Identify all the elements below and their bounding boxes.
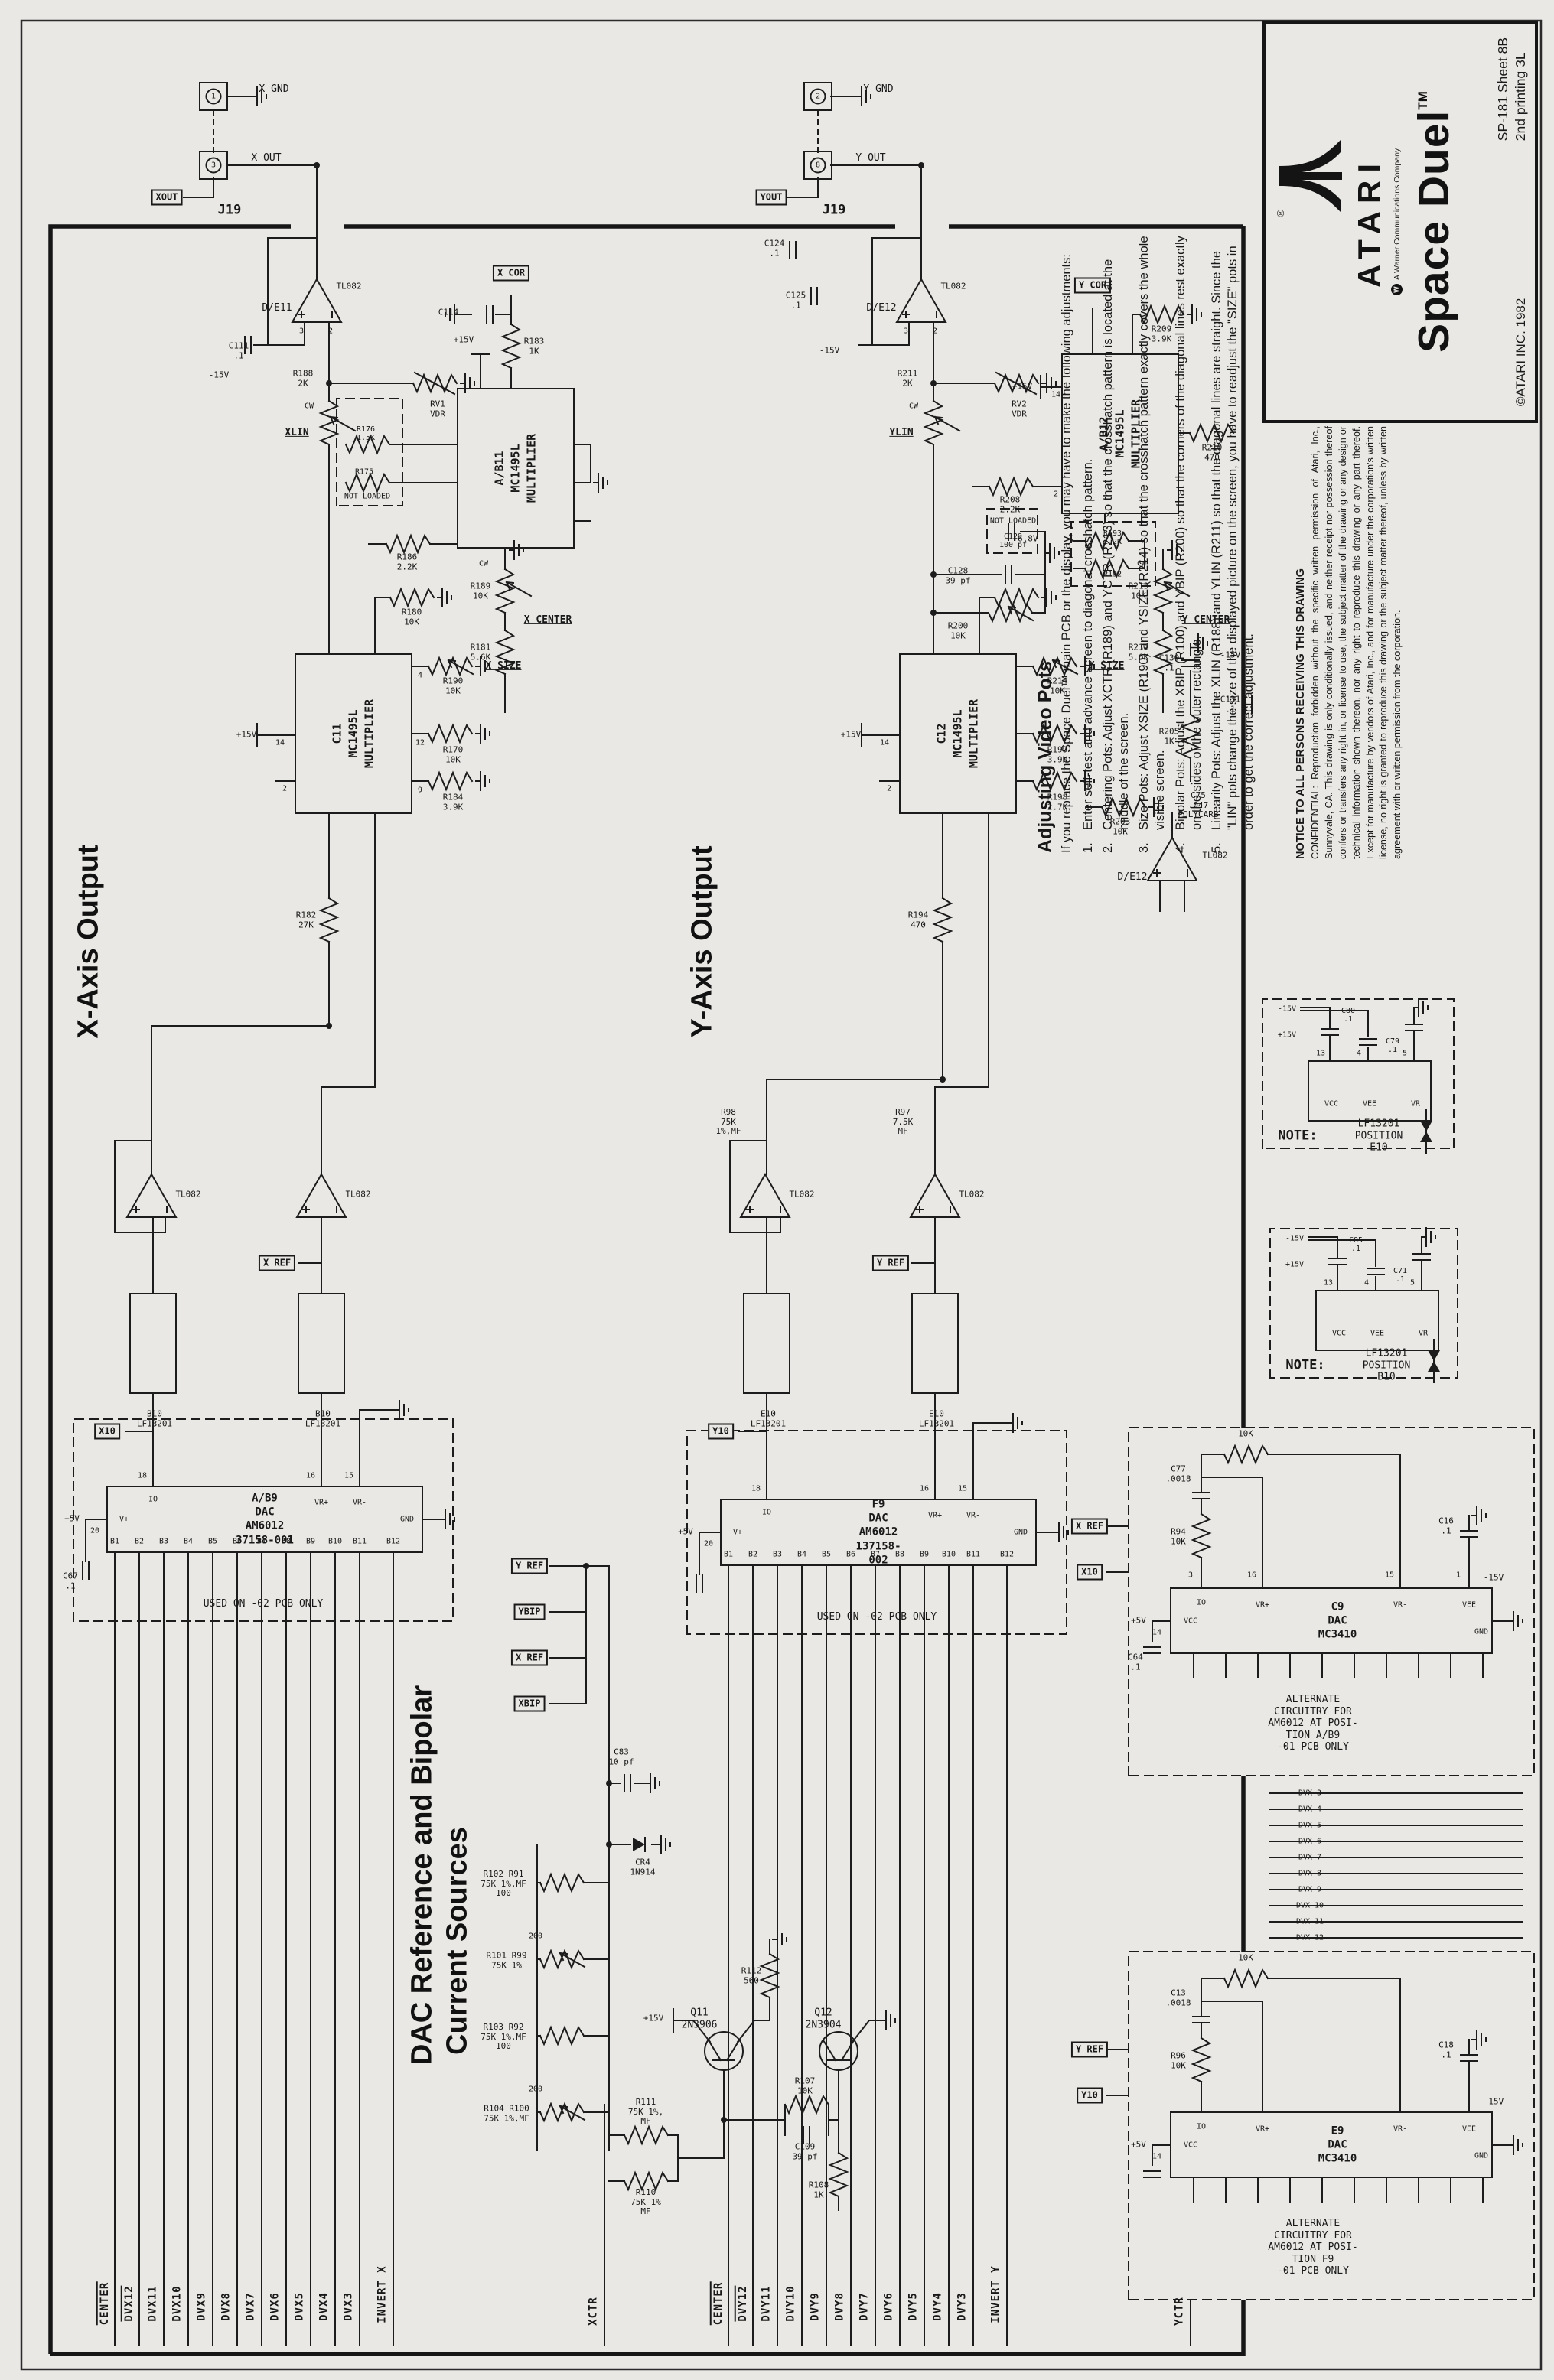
schematic-label: -15V: [1484, 1574, 1504, 1584]
schematic-label: DVX 4: [1298, 1805, 1321, 1814]
schematic-label: B10: [942, 1551, 956, 1559]
schematic-label: USED ON -02 PCB ONLY: [817, 1611, 937, 1623]
schematic-label: B12: [386, 1538, 400, 1546]
schematic-label: R111 75K 1%, MF: [628, 2098, 663, 2127]
instructions-intro: If you replace the Space Duel™ main PCB …: [1060, 232, 1074, 853]
schematic-label: E10 LF13201: [751, 1409, 786, 1428]
schematic-label: 16: [306, 1472, 315, 1480]
schematic-label: NOTE:: [1285, 1357, 1324, 1373]
schematic-label: C77 .0018: [1165, 1464, 1191, 1483]
schematic-label: IO: [1197, 1599, 1206, 1607]
schematic-label: B10: [328, 1538, 342, 1546]
instruction-text: Enter self-test and advance screen to di…: [1080, 459, 1096, 830]
schematic-label: VEE: [1370, 1330, 1384, 1338]
instruction-text: Size Pots: Adjust XSIZE (R190) and YSIZE…: [1136, 232, 1168, 830]
schematic-label: TL082: [336, 282, 361, 292]
schematic-label: -15V: [819, 347, 840, 357]
schematic-label: V+: [733, 1529, 742, 1537]
schematic-label: RV1 VDR: [430, 399, 445, 418]
schematic-label: R104 R100 75K 1%,MF: [484, 2104, 529, 2123]
schematic-label: DVX9: [195, 2292, 209, 2321]
schematic-label: VR+: [1256, 1601, 1269, 1610]
schematic-label: R103 R92 75K 1%,MF 100: [481, 2023, 526, 2052]
schematic-label: 10K: [1238, 1430, 1253, 1440]
schematic-label: 3: [904, 327, 908, 336]
schematic-label: X REF: [511, 1650, 548, 1666]
schematic-label: X10: [94, 1424, 120, 1440]
schematic-label: +15V: [1278, 1031, 1296, 1040]
schematic-label: VR+: [314, 1499, 328, 1507]
schematic-label: VEE: [1363, 1100, 1376, 1109]
product-title: Space DuelTM: [1409, 91, 1459, 353]
schematic-label: Current Sources: [439, 1827, 476, 2055]
schematic-label: 18: [751, 1485, 761, 1493]
schematic-label: XCTR: [587, 2297, 601, 2326]
schematic-label: 14: [275, 739, 285, 747]
schematic-label: C80 .1: [1341, 1007, 1355, 1024]
schematic-label: VR-: [353, 1499, 367, 1507]
schematic-label: C71 .1: [1393, 1267, 1407, 1284]
schematic-label: XOUT: [151, 190, 183, 206]
schematic-label: 3: [211, 161, 216, 170]
schematic-label: R94 10K: [1171, 1527, 1186, 1546]
schematic-label: VR+: [928, 1512, 942, 1520]
schematic-label: Y GND: [863, 83, 893, 96]
schematic-label: +15V: [841, 731, 862, 741]
schematic-label: XBIP: [514, 1696, 546, 1712]
schematic-label: IO: [762, 1509, 771, 1517]
schematic-label: R102 R91 75K 1%,MF 100: [481, 1870, 526, 1899]
schematic-label: ALTERNATE CIRCUITRY FOR AM6012 AT POSI- …: [1268, 1694, 1357, 1753]
schematic-label: TL082: [345, 1190, 370, 1200]
schematic-label: 20: [90, 1527, 99, 1535]
schematic-label: DAC Reference and Bipolar: [404, 1685, 441, 2065]
schematic-label: R96 10K: [1171, 2051, 1186, 2070]
schematic-label: C11 MC1495L MULTIPLIER: [330, 699, 378, 768]
schematic-label: C12 MC1495L MULTIPLIER: [934, 699, 982, 768]
schematic-label: ALTERNATE CIRCUITRY FOR AM6012 AT POSI- …: [1268, 2218, 1357, 2277]
warner-text: A Warner Communications Company: [1393, 148, 1402, 280]
schematic-label: C83 10 pf: [608, 1747, 634, 1766]
document-number: SP-181 Sheet 8B 2nd printing 3L: [1495, 37, 1529, 141]
schematic-label: J19: [218, 202, 242, 218]
schematic-label: DVX11: [146, 2285, 160, 2321]
schematic-label: E10 LF13201: [919, 1409, 954, 1428]
schematic-label: IO: [148, 1496, 158, 1504]
schematic-label: Y REF: [1071, 2042, 1108, 2058]
schematic-label: 12: [415, 739, 425, 747]
schematic-label: 20: [704, 1540, 713, 1548]
schematic-label: Y-Axis Output: [684, 845, 721, 1037]
instruction-item: 4. Bipolar Pots: Adjust the XBIP (R100) …: [1173, 232, 1205, 853]
schematic-label: DVY8: [833, 2292, 847, 2321]
instruction-text: Centering Pots: Adjust XCTR (R189) and Y…: [1100, 232, 1132, 830]
title-block: ® ATARI W A Warner Communications Compan…: [1262, 21, 1538, 423]
instruction-number: 3.: [1136, 830, 1168, 853]
schematic-label: X CENTER: [524, 614, 572, 627]
schematic-label: B6: [233, 1538, 242, 1546]
schematic-label: X10: [1077, 1564, 1103, 1581]
schematic-label: R98 75K 1%,MF: [715, 1108, 741, 1137]
schematic-label: Q12 2N3904: [806, 2007, 842, 2030]
schematic-label: -15V: [209, 371, 230, 381]
schematic-label: Q11 2N3906: [682, 2007, 718, 2030]
schematic-label: R110 75K 1% MF: [630, 2188, 661, 2217]
schematic-label: R181 5.6K: [471, 643, 491, 662]
schematic-label: -15V: [1278, 1005, 1296, 1014]
schematic-label: 2: [887, 785, 891, 793]
schematic-label: GND: [1014, 1529, 1028, 1537]
schematic-label: INVERT Y: [989, 2265, 1003, 2323]
schematic-label: -15V: [1484, 2098, 1504, 2108]
doc-line1: SP-181 Sheet 8B: [1495, 37, 1511, 141]
schematic-label: +5V: [1131, 2141, 1146, 2150]
schematic-label: 4: [418, 672, 422, 680]
schematic-label: R194 470: [908, 910, 929, 930]
instructions-heading: Adjusting Video Pots: [1034, 232, 1057, 853]
brand-name: ATARI: [1351, 156, 1388, 288]
schematic-label: +15V: [643, 2014, 664, 2024]
instruction-number: 1.: [1080, 830, 1096, 853]
schematic-label: VCC: [1324, 1100, 1338, 1109]
instruction-text: Bipolar Pots: Adjust the XBIP (R100) and…: [1173, 232, 1205, 830]
schematic-label: 14: [1152, 1629, 1161, 1637]
schematic-label: D/E12: [1117, 871, 1147, 884]
schematic-label: 5: [1403, 1050, 1407, 1058]
schematic-label: 3: [1188, 1571, 1193, 1580]
registered-mark: ®: [1275, 210, 1286, 217]
schematic-label: C109 39 pf: [792, 2142, 817, 2161]
schematic-label: R211 2K: [898, 369, 918, 388]
schematic-label: +15V: [1285, 1261, 1304, 1269]
schematic-label: Y REF: [511, 1558, 548, 1574]
product-name: Space Duel: [1409, 110, 1458, 353]
instructions-list: 1. Enter self-test and advance screen to…: [1080, 232, 1257, 853]
schematic-label: R190 10K: [443, 676, 464, 695]
schematic-label: R189 10K: [471, 581, 491, 601]
schematic-label: VR+: [1256, 2125, 1269, 2134]
schematic-label: TL082: [959, 1190, 984, 1200]
schematic-label: TL082: [940, 282, 966, 292]
schematic-label: DVY9: [809, 2292, 823, 2321]
schematic-label: VEE: [1462, 1601, 1476, 1610]
schematic-label: R182 27K: [296, 910, 317, 930]
schematic-label: VCC: [1184, 2141, 1197, 2150]
instruction-item: 5. Linearity Pots: Adjust the XLIN (R188…: [1209, 232, 1257, 853]
instruction-text: Linearity Pots: Adjust the XLIN (R188) a…: [1209, 232, 1257, 830]
schematic-label: LF13201 POSITION B10: [1363, 1348, 1411, 1384]
schematic-label: R184 3.9K: [443, 793, 464, 812]
schematic-label: DVX6: [269, 2292, 282, 2321]
schematic-label: GND: [1474, 1628, 1488, 1636]
schematic-label: DVX 6: [1298, 1838, 1321, 1846]
schematic-label: C128 39 pf: [945, 566, 970, 585]
schematic-label: 1: [211, 93, 216, 101]
schematic-label: B1: [110, 1538, 119, 1546]
schematic-label: CR4 1N914: [630, 1857, 655, 1877]
schematic-label: VCC: [1332, 1330, 1346, 1338]
schematic-label: B7: [257, 1538, 266, 1546]
schematic-label: +15V: [454, 336, 474, 346]
schematic-label: C85 .1: [1349, 1236, 1363, 1253]
schematic-label: DVX8: [220, 2292, 233, 2321]
schematic-label: B2: [748, 1551, 757, 1559]
schematic-label: B1: [724, 1551, 733, 1559]
schematic-label: DVX 12: [1296, 1934, 1324, 1942]
schematic-label: R101 R99 75K 1%: [487, 1951, 527, 1970]
instruction-item: 3. Size Pots: Adjust XSIZE (R190) and YS…: [1136, 232, 1168, 853]
schematic-label: VR: [1411, 1100, 1420, 1109]
schematic-label: DVY11: [760, 2285, 774, 2321]
schematic-label: 14: [1152, 2153, 1161, 2161]
schematic-label: R112 560: [741, 1966, 762, 1985]
schematic-label: GND: [1474, 2152, 1488, 2160]
instruction-number: 4.: [1173, 830, 1205, 853]
schematic-label: R176 1.5K: [357, 425, 375, 442]
schematic-label: DVX3: [342, 2292, 356, 2321]
schematic-label: B2: [135, 1538, 144, 1546]
schematic-label: 1: [1456, 1571, 1461, 1580]
schematic-label: DVX 11: [1296, 1918, 1324, 1926]
schematic-label: DVX 3: [1298, 1789, 1321, 1798]
schematic-label: B4: [797, 1551, 806, 1559]
notice-body: CONFIDENTIAL: Reproduction forbidden wit…: [1309, 426, 1405, 859]
schematic-label: +15V: [1012, 383, 1033, 392]
schematic-label: C16 .1: [1438, 1516, 1454, 1535]
schematic-label: B11: [353, 1538, 367, 1546]
doc-line2: 2nd printing 3L: [1513, 37, 1529, 141]
schematic-label: R183 1K: [524, 337, 545, 356]
schematic-label: 15: [958, 1485, 967, 1493]
schematic-label: X COR: [493, 265, 529, 282]
schematic-label: 13: [1316, 1050, 1325, 1058]
copyright: ©ATARI INC. 1982: [1513, 298, 1529, 406]
landscape-sheet: CENTERDVX12DVX11DVX10DVX9DVX8DVX7DVX6DVX…: [0, 0, 1554, 2380]
schematic-label: 4: [1357, 1050, 1361, 1058]
schematic-label: VR: [1419, 1330, 1428, 1338]
schematic-label: C125 .1: [786, 291, 806, 310]
instruction-item: 1. Enter self-test and advance screen to…: [1080, 232, 1096, 853]
schematic-label: R200 10K: [948, 621, 969, 640]
schematic-label: VR-: [1393, 1601, 1407, 1610]
legal-notice: NOTICE TO ALL PERSONS RECEIVING THIS DRA…: [1295, 426, 1538, 859]
schematic-label: 2: [933, 327, 937, 336]
schematic-label: YBIP: [514, 1604, 546, 1620]
schematic-label: 3: [299, 327, 304, 336]
warner-line: W A Warner Communications Company: [1391, 148, 1403, 295]
schematic-label: DVX12: [121, 2285, 137, 2321]
schematic-label: +15V: [236, 731, 257, 741]
schematic-label: DVY4: [931, 2292, 945, 2321]
schematic-label: NOT LOADED: [990, 517, 1036, 526]
schematic-label: X REF: [259, 1255, 295, 1271]
schematic-label: 2: [816, 93, 820, 101]
warner-mark-icon: W: [1391, 284, 1403, 295]
schematic-label: E9 DAC MC3410: [1318, 2124, 1357, 2167]
schematic-label: +5V: [678, 1528, 693, 1538]
schematic-label: C9 DAC MC3410: [1318, 1600, 1357, 1643]
schematic-label: DVX 7: [1298, 1854, 1321, 1862]
schematic-label: IO: [1197, 2123, 1206, 2131]
schematic-label: VR-: [966, 1512, 980, 1520]
instruction-number: 2.: [1100, 830, 1132, 853]
schematic-label: B4: [184, 1538, 193, 1546]
schematic-label: GND: [400, 1516, 414, 1524]
schematic-label: C114: [438, 308, 459, 318]
schematic-label: 14: [880, 739, 889, 747]
schematic-label: 5: [1410, 1279, 1415, 1288]
schematic-label: B6: [846, 1551, 855, 1559]
schematic-label: B10 LF13201: [305, 1409, 340, 1428]
schematic-label: X-Axis Output: [70, 845, 107, 1038]
schematic-label: B8: [895, 1551, 904, 1559]
schematic-label: XLIN: [285, 427, 308, 439]
schematic-label: 16: [920, 1485, 929, 1493]
schematic-label: VCC: [1184, 1617, 1197, 1626]
schematic-label: B9: [306, 1538, 315, 1546]
schematic-label: DVX 5: [1298, 1822, 1321, 1830]
schematic-label: +5V: [1131, 1617, 1146, 1626]
schematic-label: 4: [1364, 1279, 1369, 1288]
schematic-label: 13: [1324, 1279, 1333, 1288]
schematic-label: R175: [355, 468, 373, 477]
schematic-label: DVX 9: [1298, 1886, 1321, 1894]
schematic-label: B9: [920, 1551, 929, 1559]
schematic-label: C13 .0018: [1165, 1988, 1191, 2007]
schematic-label: CW: [305, 402, 314, 411]
schematic-label: DVX7: [244, 2292, 258, 2321]
schematic-label: 9: [418, 786, 422, 795]
schematic-label: CENTER: [710, 2282, 726, 2326]
schematic-label: 2: [328, 327, 333, 336]
schematic-label: INVERT X: [376, 2265, 389, 2323]
schematic-label: Y REF: [872, 1255, 909, 1271]
schematic-label: DVY10: [784, 2285, 798, 2321]
schematic-label: R170 10K: [443, 745, 464, 764]
schematic-label: 200: [529, 1932, 542, 1941]
schematic-label: C64 .1: [1128, 1652, 1143, 1672]
trademark: TM: [1416, 91, 1430, 110]
schematic-label: X REF: [1071, 1519, 1108, 1535]
schematic-label: NOT LOADED: [344, 493, 390, 501]
schematic-label: 15: [344, 1472, 353, 1480]
schematic-label: DVX 8: [1298, 1870, 1321, 1878]
schematic-label: B10 LF13201: [137, 1409, 172, 1428]
schematic-label: 200: [529, 2085, 542, 2094]
notice-heading: NOTICE TO ALL PERSONS RECEIVING THIS DRA…: [1295, 426, 1307, 859]
schematic-label: NOTE:: [1278, 1128, 1317, 1144]
schematic-label: B11: [966, 1551, 980, 1559]
schematic-label: DVX5: [293, 2292, 307, 2321]
schematic-label: R107 10K: [795, 2076, 816, 2095]
schematic-label: LF13201 POSITION E10: [1355, 1118, 1403, 1154]
schematic-label: VEE: [1462, 2125, 1476, 2134]
schematic-label: +5V: [64, 1515, 80, 1525]
atari-fuji-icon: [1275, 130, 1354, 222]
schematic-label: 15: [1385, 1571, 1394, 1580]
schematic-label: B5: [822, 1551, 831, 1559]
schematic-label: R188 2K: [293, 369, 314, 388]
schematic-label: CW: [909, 402, 918, 411]
schematic-label: R180 10K: [402, 607, 422, 627]
schematic-label: Y10: [708, 1424, 734, 1440]
schematic-label: DVY12: [735, 2285, 751, 2321]
schematic-label: X OUT: [251, 152, 281, 164]
schematic-label: R108 1K: [809, 2180, 829, 2199]
schematic-label: Y OUT: [855, 152, 885, 164]
schematic-label: R97 7.5K MF: [893, 1108, 914, 1137]
schematic-label: B3: [159, 1538, 168, 1546]
schematic-label: 8: [816, 161, 820, 170]
schematic-label: D/E12: [866, 302, 896, 314]
schematic-label: YLIN: [889, 427, 913, 439]
adjustment-instructions: Adjusting Video Pots If you replace the …: [1034, 232, 1243, 853]
schematic-label: R208 2.2K: [1000, 495, 1021, 514]
schematic-label: USED ON -02 PCB ONLY: [204, 1598, 324, 1610]
schematic-label: VR-: [1393, 2125, 1407, 2134]
schematic-label: DVY5: [907, 2292, 920, 2321]
schematic-label: 18: [138, 1472, 147, 1480]
schematic-label: R186 2.2K: [397, 552, 418, 571]
schematic-label: -15V: [1285, 1235, 1304, 1243]
schematic-label: CW: [479, 560, 488, 568]
schematic-label: YCTR: [1173, 2297, 1187, 2326]
schematic-label: TL082: [789, 1190, 814, 1200]
schematic-label: YOUT: [756, 190, 787, 206]
schematic-label: B3: [773, 1551, 782, 1559]
instruction-number: 5.: [1209, 830, 1257, 853]
schematic-label: C124 .1: [764, 239, 785, 258]
schematic-label: TL082: [175, 1190, 200, 1200]
schematic-label: RV2 VDR: [1012, 399, 1027, 418]
schematic-label: DVX10: [171, 2285, 184, 2321]
schematic-label: DVX4: [318, 2292, 331, 2321]
schematic-label: J19: [823, 202, 846, 218]
schematic-label: A/B11 MC1495L MULTIPLIER: [492, 434, 540, 503]
schematic-label: C67 .1: [63, 1571, 78, 1590]
schematic-label: B8: [282, 1538, 291, 1546]
schematic-label: X GND: [259, 83, 288, 96]
schematic-label: D/E11: [262, 302, 292, 314]
schematic-label: DVY6: [882, 2292, 896, 2321]
schematic-label: 10K: [1238, 1954, 1253, 1964]
schematic-label: DVY3: [956, 2292, 969, 2321]
schematic-label: DVX 10: [1296, 1902, 1324, 1910]
schematic-label: C111 .1: [229, 341, 249, 360]
schematic-label: 2: [282, 785, 287, 793]
schematic-label: C18 .1: [1438, 2040, 1454, 2059]
schematic-label: V+: [119, 1516, 129, 1524]
schematic-label: B5: [208, 1538, 217, 1546]
schematic-label: C79 .1: [1386, 1037, 1399, 1054]
schematic-label: Y10: [1077, 2088, 1103, 2104]
schematic-label: CENTER: [96, 2282, 112, 2326]
instruction-item: 2. Centering Pots: Adjust XCTR (R189) an…: [1100, 232, 1132, 853]
schematic-label: DVY7: [858, 2292, 871, 2321]
schematic-label: B12: [1000, 1551, 1014, 1559]
schematic-label: B7: [871, 1551, 880, 1559]
schematic-label: 16: [1247, 1571, 1256, 1580]
schematic-page: CENTERDVX12DVX11DVX10DVX9DVX8DVX7DVX6DVX…: [0, 0, 1554, 2380]
